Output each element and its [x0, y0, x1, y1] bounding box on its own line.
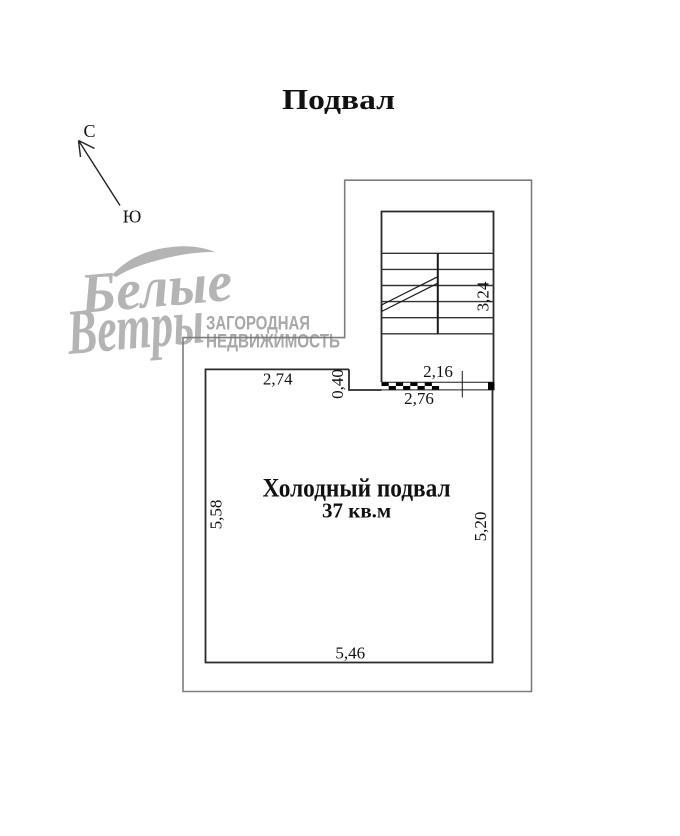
svg-text:37 кв.м: 37 кв.м	[322, 499, 391, 523]
svg-text:Подвал: Подвал	[282, 84, 395, 116]
svg-text:0,40: 0,40	[328, 369, 347, 399]
svg-text:Ветры: Ветры	[63, 285, 206, 368]
svg-text:5,20: 5,20	[471, 512, 490, 542]
svg-text:НЕДВИЖИМОСТЬ: НЕДВИЖИМОСТЬ	[206, 332, 340, 353]
svg-text:2,76: 2,76	[404, 389, 434, 408]
svg-text:3,24: 3,24	[474, 281, 493, 311]
svg-text:5,46: 5,46	[335, 643, 365, 662]
svg-text:Ю: Ю	[123, 207, 142, 227]
svg-text:С: С	[83, 121, 95, 141]
svg-text:2,16: 2,16	[423, 362, 453, 381]
svg-text:5,58: 5,58	[206, 500, 225, 530]
svg-text:2,74: 2,74	[263, 370, 293, 389]
